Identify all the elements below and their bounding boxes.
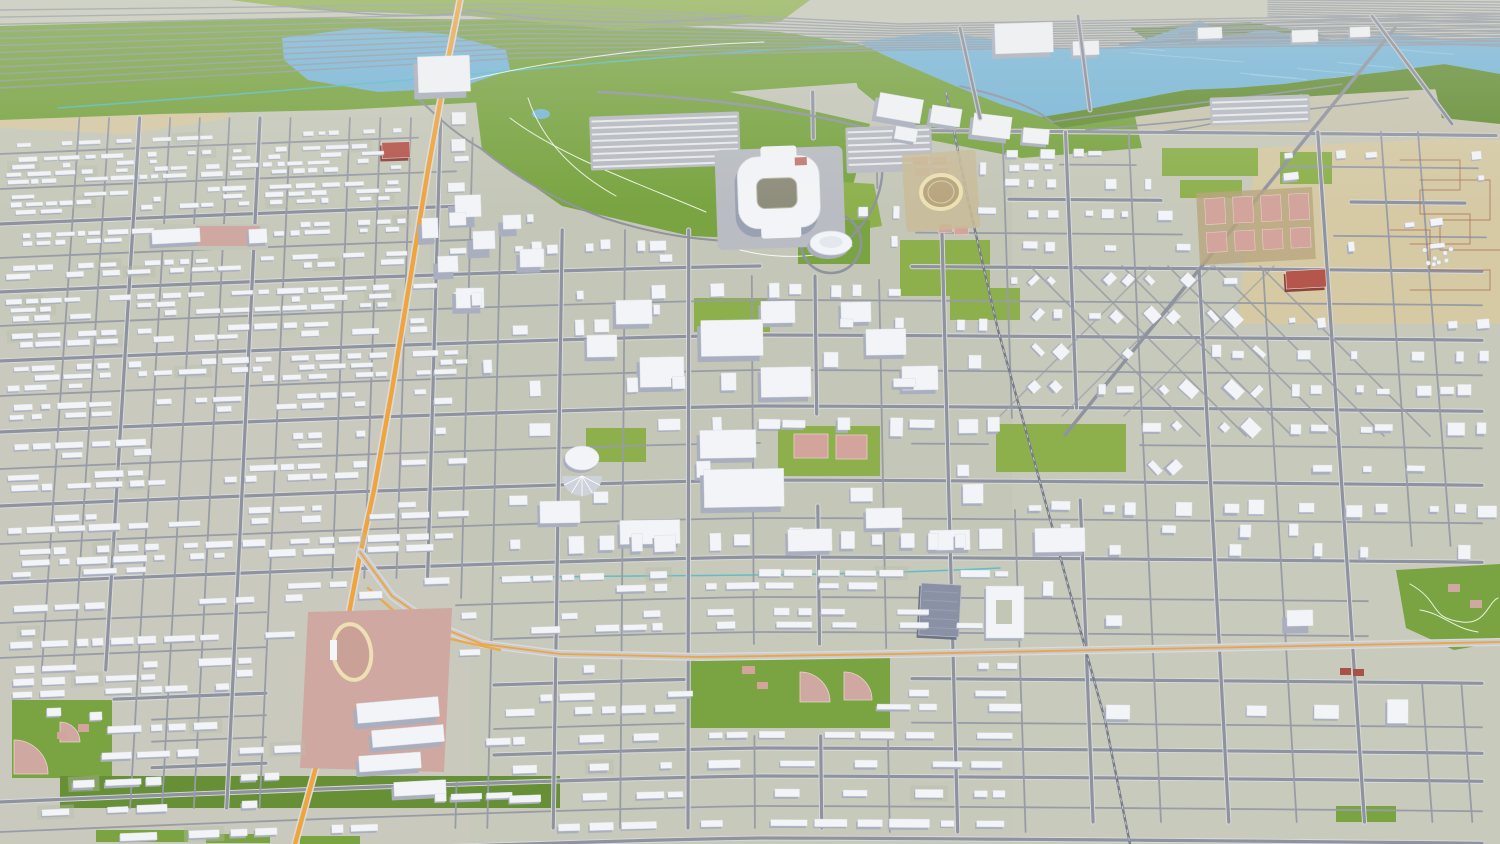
horizon-haze bbox=[0, 0, 1500, 844]
city-map-render bbox=[0, 0, 1500, 844]
city-3d-map-svg bbox=[0, 0, 1500, 844]
